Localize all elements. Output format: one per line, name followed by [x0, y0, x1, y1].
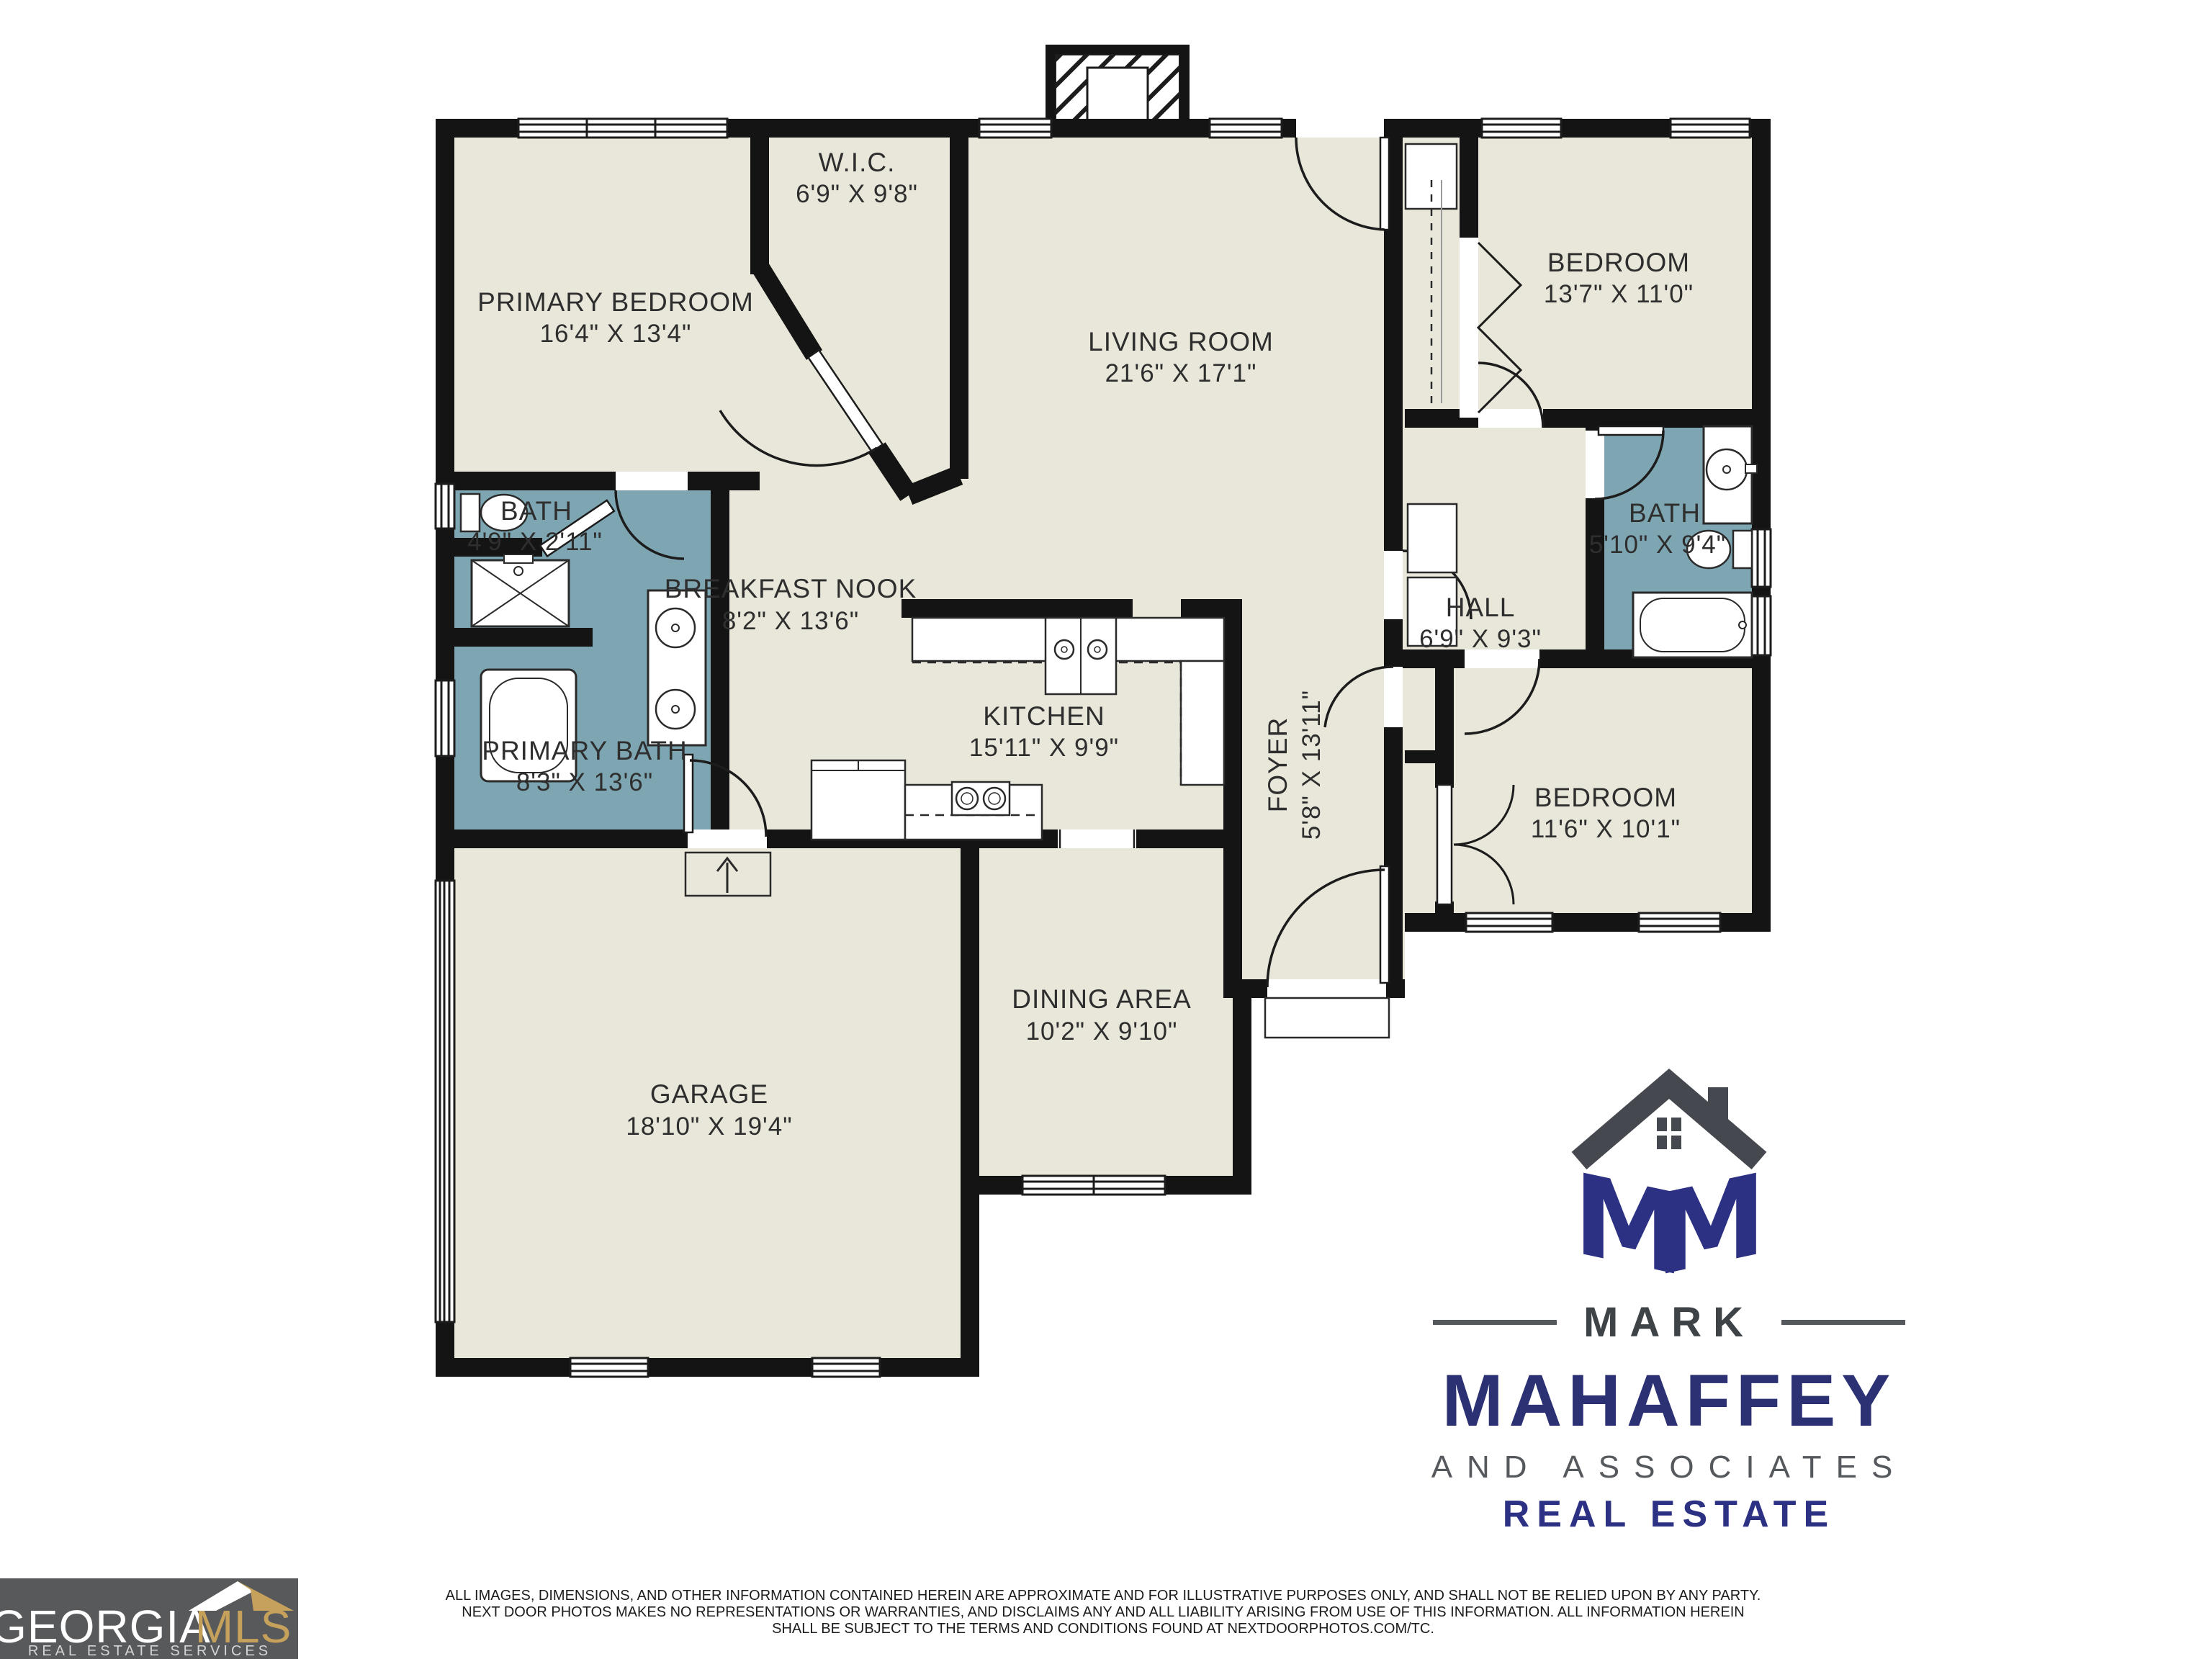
window: [436, 484, 454, 529]
room-dims-bedroom-r: 11'6" X 10'1": [1531, 815, 1681, 843]
room-label-kitchen: KITCHEN: [983, 701, 1105, 731]
disclaimer-line1: ALL IMAGES, DIMENSIONS, AND OTHER INFORM…: [446, 1588, 1761, 1604]
window: [1752, 529, 1771, 587]
disclaimer: ALL IMAGES, DIMENSIONS, AND OTHER INFORM…: [446, 1588, 1761, 1637]
window: [1466, 913, 1552, 932]
room-label-hall: HALL: [1446, 593, 1516, 622]
fireplace-icon: [1046, 45, 1190, 128]
rule-left: [1433, 1320, 1557, 1325]
room-dims-primary-bedroom: 16'4" X 13'4": [540, 320, 692, 348]
window: [979, 119, 1051, 138]
room-label-bedroom-tr: BEDROOM: [1547, 248, 1690, 277]
brand-subtitle: REAL ESTATE: [1503, 1493, 1835, 1535]
window: [812, 1358, 880, 1377]
room-label-foyer: FOYER: [1263, 717, 1292, 812]
room-dims-dining-area: 10'2" X 9'10": [1026, 1017, 1178, 1046]
room-dims-hall: 6'9" X 9'3": [1419, 625, 1542, 653]
room-dims-bedroom-tr: 13'7" X 11'0": [1544, 280, 1694, 308]
room-dims-foyer: 5'8" X 13'11": [1298, 690, 1326, 840]
window: [1671, 119, 1750, 138]
room-label-bedroom-r: BEDROOM: [1534, 783, 1677, 812]
disclaimer-line2: NEXT DOOR PHOTOS MAKES NO REPRESENTATION…: [462, 1604, 1744, 1620]
brand-logo: M M MARK MAHAFFEY AND ASSOCIATES REAL ES…: [1431, 1084, 1907, 1535]
vanity-icon: [648, 590, 706, 745]
mls-logo: GEORGIA MLS REAL ESTATE SERVICES: [0, 1578, 298, 1659]
room-label-bath1: BATH: [500, 496, 572, 526]
window-icon: [1657, 1118, 1681, 1149]
vanity-icon: [1704, 426, 1757, 523]
fridge-icon: [811, 760, 905, 840]
room-dims-bath2: 5'10" X 9'4": [1589, 531, 1726, 559]
room-dims-kitchen: 15'11" X 9'9": [969, 734, 1119, 762]
floor-plan-svg: PRIMARY BEDROOM 16'4" X 13'4" W.I.C. 6'9…: [0, 0, 2212, 1659]
window: [1210, 119, 1282, 138]
window: [436, 680, 454, 756]
window: [570, 1358, 648, 1377]
room-dims-breakfast-nook: 8'2" X 13'6": [722, 607, 859, 635]
room-dims-primary-bath: 8'3" X 13'6": [516, 768, 653, 796]
room-label-primary-bedroom: PRIMARY BEDROOM: [477, 287, 754, 317]
closet: [1408, 504, 1457, 572]
room-dims-wic: 6'9" X 9'8": [796, 180, 918, 208]
room-dims-living-room: 21'6" X 17'1": [1105, 359, 1257, 387]
window: [1482, 119, 1561, 138]
disclaimer-line3: SHALL BE SUBJECT TO THE TERMS AND CONDIT…: [772, 1621, 1434, 1637]
monogram-m-right: M: [1655, 1148, 1766, 1302]
mls-tagline: REAL ESTATE SERVICES: [28, 1643, 271, 1659]
house-logo-icon: M M: [1573, 1084, 1766, 1302]
room-label-breakfast-nook: BREAKFAST NOOK: [665, 574, 917, 603]
bathtub-icon: [1633, 593, 1752, 657]
room-dims-garage: 18'10" X 19'4": [626, 1112, 792, 1141]
window: [1752, 596, 1771, 655]
stove-icon: [952, 782, 1010, 815]
window: [1639, 913, 1720, 932]
porch: [1265, 998, 1389, 1038]
room-label-primary-bath: PRIMARY BATH: [482, 736, 687, 765]
room-label-bath2: BATH: [1629, 498, 1701, 528]
room-label-dining-area: DINING AREA: [1012, 984, 1192, 1014]
rule-right: [1781, 1320, 1905, 1325]
window: [518, 119, 727, 138]
roof-icon: [1579, 1084, 1759, 1161]
floor-plan-page: PRIMARY BEDROOM 16'4" X 13'4" W.I.C. 6'9…: [0, 0, 2212, 1659]
shower-icon: [472, 554, 569, 626]
room-label-garage: GARAGE: [650, 1079, 768, 1109]
brand-name-main: MAHAFFEY: [1442, 1359, 1897, 1442]
brand-tagline: AND ASSOCIATES: [1431, 1449, 1907, 1485]
room-label-living-room: LIVING ROOM: [1088, 327, 1274, 356]
room-dims-bath1: 4'9" X 2'11": [467, 528, 603, 556]
room-label-wic: W.I.C.: [819, 148, 896, 177]
brand-name-top: MARK: [1583, 1299, 1755, 1346]
garage-door: [436, 881, 454, 1322]
window: [1022, 1176, 1165, 1195]
